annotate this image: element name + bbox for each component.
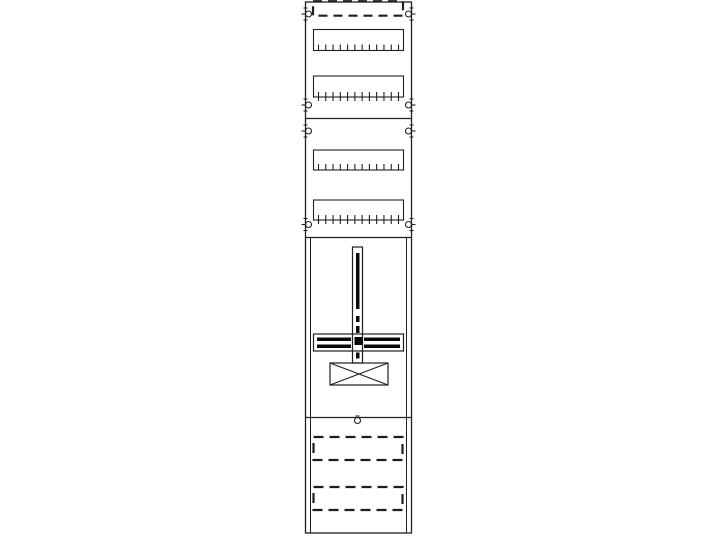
meter-rail-adjust-slot [356, 253, 360, 309]
cross-bar-slot-2 [364, 338, 400, 342]
meter-rail-mark-1 [356, 316, 360, 322]
cross-bar-slot-4 [364, 345, 400, 349]
cross-bar-slot-1 [317, 338, 351, 342]
meter-rail-mark-2 [356, 326, 360, 333]
drawing-canvas [0, 0, 716, 540]
cross-center-block [355, 337, 363, 345]
cross-bar-slot-3 [317, 345, 351, 349]
meter-rail-mark-3 [356, 353, 360, 359]
meter-panel-diagram [0, 0, 716, 540]
